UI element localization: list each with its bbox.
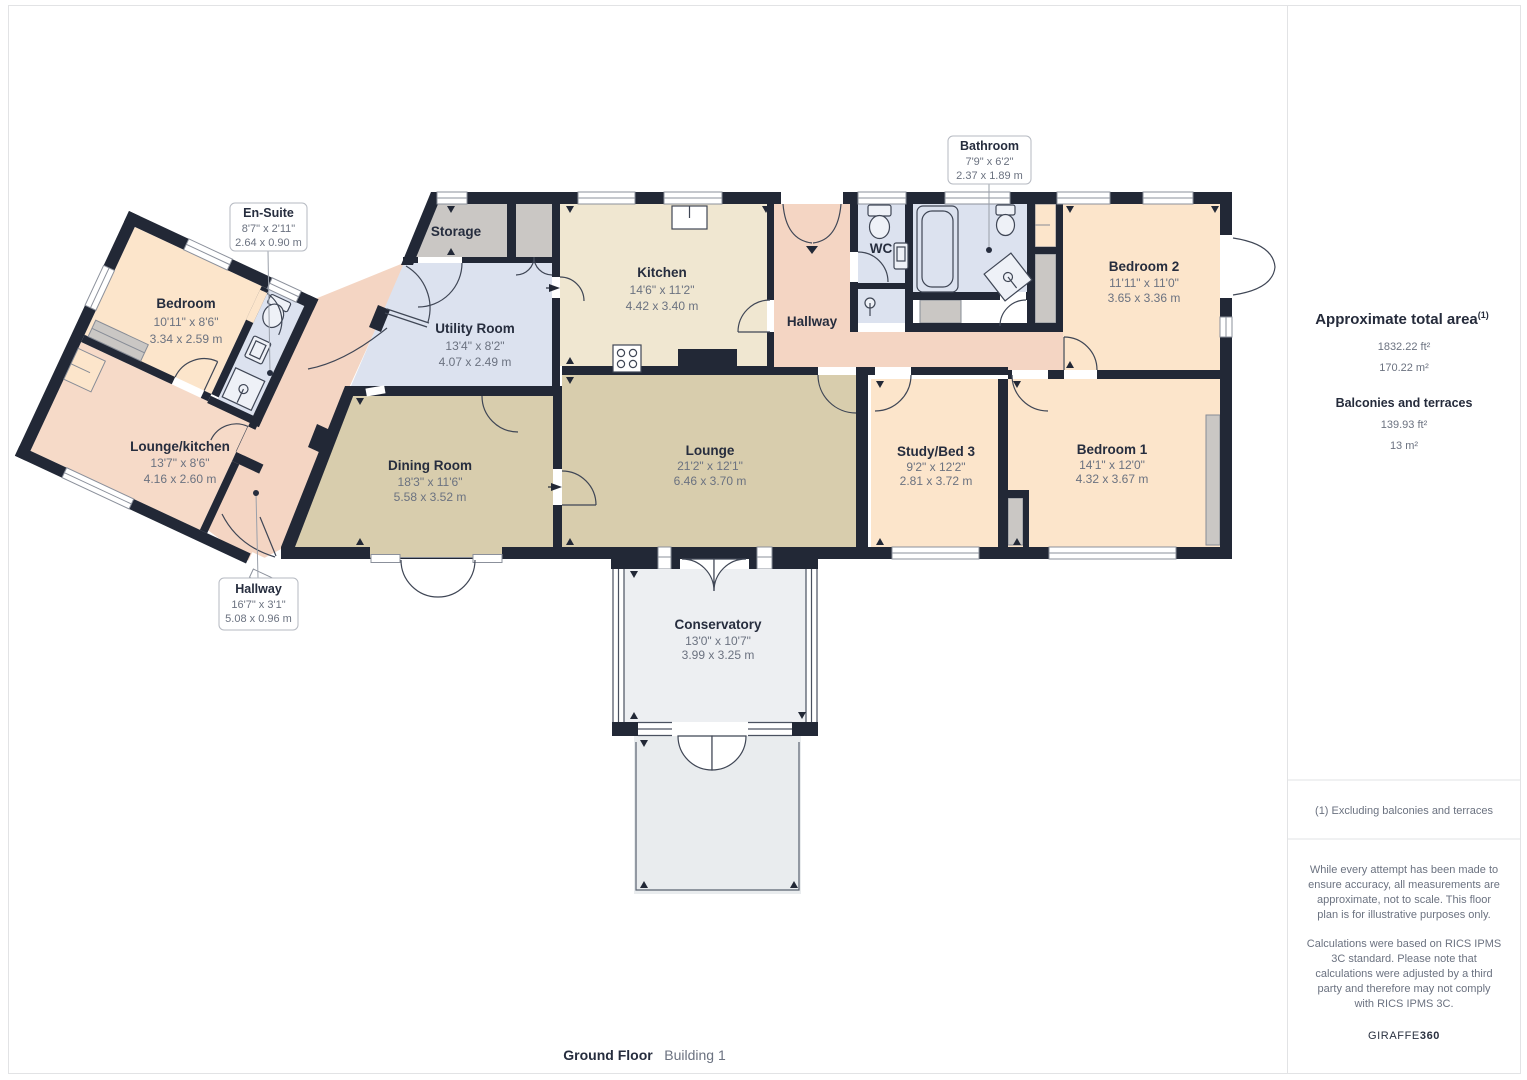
svg-text:11'11" x 11'0": 11'11" x 11'0" — [1109, 276, 1179, 290]
svg-text:Study/Bed 3: Study/Bed 3 — [897, 444, 976, 459]
svg-text:6.46 x 3.70 m: 6.46 x 3.70 m — [674, 474, 747, 488]
svg-text:3C standard. Please note that: 3C standard. Please note that — [1331, 953, 1477, 965]
svg-text:Building 1: Building 1 — [664, 1047, 726, 1063]
svg-text:Bedroom 1: Bedroom 1 — [1077, 442, 1148, 457]
svg-text:13'7" x 8'6": 13'7" x 8'6" — [150, 456, 209, 470]
svg-text:9'2" x 12'2": 9'2" x 12'2" — [906, 460, 965, 474]
svg-text:170.22 m²: 170.22 m² — [1379, 362, 1429, 374]
svg-text:1832.22 ft²: 1832.22 ft² — [1378, 341, 1431, 353]
svg-text:Bathroom: Bathroom — [960, 139, 1019, 153]
svg-text:plan is for illustrative purpo: plan is for illustrative purposes only. — [1317, 909, 1490, 921]
svg-text:2.81 x 3.72 m: 2.81 x 3.72 m — [900, 474, 973, 488]
svg-text:Utility Room: Utility Room — [435, 321, 515, 336]
svg-text:Ground Floor: Ground Floor — [563, 1047, 653, 1063]
svg-text:Storage: Storage — [431, 224, 482, 239]
svg-text:Conservatory: Conservatory — [674, 617, 762, 632]
svg-text:4.42 x 3.40 m: 4.42 x 3.40 m — [626, 299, 699, 313]
svg-text:14'6" x 11'2": 14'6" x 11'2" — [630, 283, 695, 297]
svg-text:While every attempt has been m: While every attempt has been made to — [1310, 864, 1498, 876]
svg-text:Hallway: Hallway — [235, 582, 282, 596]
svg-text:2.37 x 1.89 m: 2.37 x 1.89 m — [956, 170, 1023, 182]
svg-text:Kitchen: Kitchen — [637, 265, 687, 280]
svg-text:Dining Room: Dining Room — [388, 458, 472, 473]
svg-text:10'11" x 8'6": 10'11" x 8'6" — [154, 315, 219, 329]
svg-text:21'2" x 12'1": 21'2" x 12'1" — [677, 459, 743, 473]
svg-text:Bedroom 2: Bedroom 2 — [1109, 259, 1180, 274]
svg-text:Hallway: Hallway — [787, 314, 838, 329]
svg-text:3.99 x 3.25 m: 3.99 x 3.25 m — [682, 648, 755, 662]
svg-text:ensure accuracy, all measureme: ensure accuracy, all measurements are — [1308, 879, 1500, 891]
svg-text:7'9" x 6'2": 7'9" x 6'2" — [965, 156, 1013, 168]
svg-text:3.34 x 2.59 m: 3.34 x 2.59 m — [150, 332, 223, 346]
svg-text:En-Suite: En-Suite — [243, 206, 294, 220]
svg-text:Bedroom: Bedroom — [156, 296, 215, 311]
svg-text:5.08 x 0.96 m: 5.08 x 0.96 m — [225, 613, 292, 625]
svg-text:5.58 x 3.52 m: 5.58 x 3.52 m — [394, 490, 467, 504]
svg-text:13'0" x 10'7": 13'0" x 10'7" — [685, 634, 751, 648]
svg-text:Balconies and terraces: Balconies and terraces — [1336, 396, 1473, 410]
svg-text:with RICS IPMS 3C.: with RICS IPMS 3C. — [1353, 998, 1453, 1010]
svg-text:13 m²: 13 m² — [1390, 440, 1418, 452]
svg-text:Lounge/kitchen: Lounge/kitchen — [130, 439, 230, 454]
svg-text:14'1" x 12'0": 14'1" x 12'0" — [1079, 458, 1145, 472]
svg-text:calculations were adjusted by: calculations were adjusted by a third — [1315, 968, 1492, 980]
svg-text:2.64 x 0.90 m: 2.64 x 0.90 m — [235, 237, 302, 249]
svg-text:13'4" x 8'2": 13'4" x 8'2" — [445, 339, 504, 353]
svg-text:Lounge: Lounge — [686, 443, 735, 458]
svg-text:WC: WC — [870, 241, 893, 256]
svg-text:4.16 x 2.60 m: 4.16 x 2.60 m — [144, 472, 217, 486]
svg-text:3.65 x 3.36 m: 3.65 x 3.36 m — [1108, 291, 1181, 305]
svg-text:Approximate total area(1): Approximate total area(1) — [1315, 310, 1489, 328]
svg-text:(1) Excluding balconies and te: (1) Excluding balconies and terraces — [1315, 805, 1493, 817]
svg-text:18'3" x 11'6": 18'3" x 11'6" — [398, 475, 463, 489]
svg-text:4.07 x 2.49 m: 4.07 x 2.49 m — [439, 355, 512, 369]
svg-text:8'7" x 2'11": 8'7" x 2'11" — [242, 223, 295, 235]
svg-text:Calculations were based on RIC: Calculations were based on RICS IPMS — [1307, 938, 1501, 950]
svg-text:4.32 x 3.67 m: 4.32 x 3.67 m — [1076, 472, 1149, 486]
svg-text:party and therefore may not co: party and therefore may not comply — [1317, 983, 1491, 995]
svg-text:16'7" x 3'1": 16'7" x 3'1" — [231, 599, 285, 611]
svg-text:GIRAFFE360: GIRAFFE360 — [1368, 1030, 1440, 1042]
svg-text:139.93 ft²: 139.93 ft² — [1381, 419, 1428, 431]
svg-text:approximate, not to scale. Thi: approximate, not to scale. This floor — [1317, 894, 1491, 906]
